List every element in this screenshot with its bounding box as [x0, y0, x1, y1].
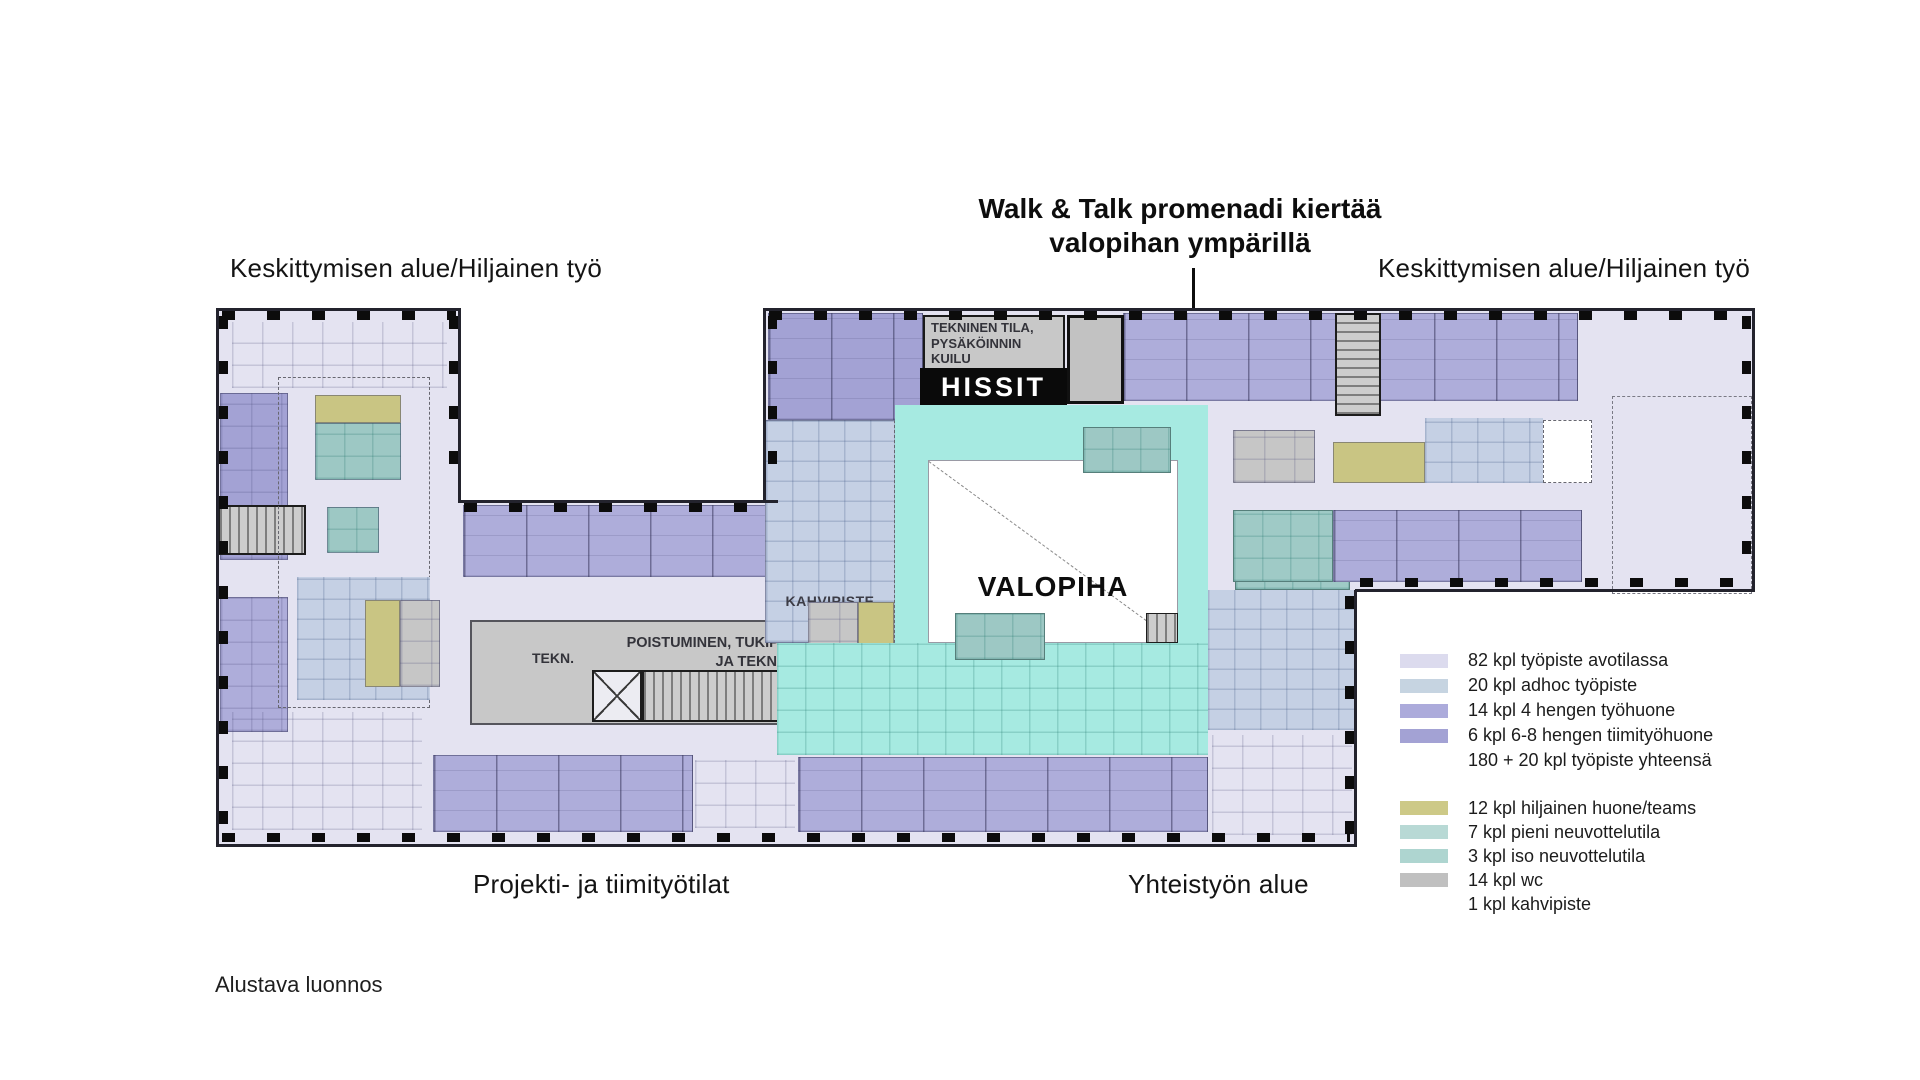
wall-right	[1752, 308, 1755, 592]
elevator-shaft-middle	[592, 670, 642, 722]
poistuminen-line1: POISTUMINEN, TUKIP.	[627, 634, 781, 653]
walk-talk-annotation: Walk & Talk promenadi kiertää valopihan …	[940, 192, 1420, 260]
legend-swatch-open-office	[1400, 654, 1448, 668]
tekninen-line1: TEKNINEN TILA,	[931, 320, 1057, 336]
open-desks-bottom-left	[232, 712, 422, 830]
ticks-notch-top	[464, 503, 770, 512]
area-label-top-left: Keskittymisen alue/Hiljainen työ	[230, 253, 602, 284]
office-room-strip-right-bottom	[1333, 510, 1582, 582]
area-label-top-right: Keskittymisen alue/Hiljainen työ	[1378, 253, 1750, 284]
hissit-elevator-lobby: HISSIT	[920, 368, 1067, 406]
office-room-strip-middle	[463, 505, 775, 577]
promenade-right	[1178, 460, 1208, 643]
wall-notch-right	[763, 308, 766, 503]
wc-block-left	[400, 600, 440, 687]
legend-row: 20 kpl adhoc työpiste	[1400, 673, 1713, 698]
courtyard-stairs	[1146, 613, 1178, 643]
legend-label: 82 kpl työpiste avotilassa	[1468, 650, 1668, 671]
quiet-rooms-right	[1333, 442, 1425, 483]
legend-row: 6 kpl 6-8 hengen tiimityöhuone	[1400, 723, 1713, 748]
legend-room-group: 12 kpl hiljainen huone/teams 7 kpl pieni…	[1400, 796, 1696, 916]
legend-swatch-spacer	[1400, 754, 1448, 768]
legend-label: 6 kpl 6-8 hengen tiimityöhuone	[1468, 725, 1713, 746]
legend-row: 3 kpl iso neuvottelutila	[1400, 844, 1696, 868]
area-label-bottom-left: Projekti- ja tiimityötilat	[473, 869, 730, 900]
legend-row: 7 kpl pieni neuvottelutila	[1400, 820, 1696, 844]
legend-swatch-small-meeting	[1400, 825, 1448, 839]
ticks-bottom-main	[222, 833, 1350, 842]
legend-row: 1 kpl kahvipiste	[1400, 892, 1696, 916]
stairwell-right-wing	[1335, 313, 1381, 416]
legend-label: 7 kpl pieni neuvottelutila	[1468, 822, 1660, 843]
collaboration-lounge	[1208, 590, 1355, 730]
wall-bottom-main	[216, 844, 1357, 847]
tekninen-line2: PYSÄKÖINNIN	[931, 336, 1057, 352]
adhoc-area-right	[1425, 418, 1543, 483]
valopiha-label: VALOPIHA	[929, 571, 1177, 603]
ticks-right-center-lower	[1345, 596, 1354, 841]
ticks-top-left	[222, 311, 456, 320]
legend-label: 14 kpl 4 hengen työhuone	[1468, 700, 1675, 721]
ticks-notch-left	[449, 316, 458, 496]
team-room-strip-center-top-left	[768, 313, 923, 420]
legend-row: 82 kpl työpiste avotilassa	[1400, 648, 1713, 673]
legend-row: 180 + 20 kpl työpiste yhteensä	[1400, 748, 1713, 773]
legend-row: 14 kpl wc	[1400, 868, 1696, 892]
hissit-label: HISSIT	[941, 372, 1046, 403]
legend-swatch-room4	[1400, 704, 1448, 718]
quiet-room-left-2	[365, 600, 400, 687]
legend-swatch-large-meeting	[1400, 849, 1448, 863]
legend-label: 14 kpl wc	[1468, 870, 1543, 891]
floor-plan-page: Keskittymisen alue/Hiljainen työ Keskitt…	[0, 0, 1920, 1080]
area-label-bottom-right: Yhteistyön alue	[1128, 869, 1309, 900]
walk-talk-line2: valopihan ympärillä	[940, 226, 1420, 260]
tekn-label: TEKN.	[532, 650, 574, 666]
large-meeting-room-right	[1233, 510, 1333, 582]
tekninen-line3: KUILU	[931, 351, 1057, 367]
wc-block-right	[1233, 430, 1315, 483]
wall-notch-left	[458, 308, 461, 503]
ticks-top-center-right	[769, 311, 1749, 320]
small-meeting-ring-top	[1083, 427, 1171, 473]
legend-row: 14 kpl 4 hengen työhuone	[1400, 698, 1713, 723]
desk-room-strip-bottom-center	[798, 757, 1208, 832]
legend-label: 1 kpl kahvipiste	[1468, 894, 1591, 915]
ticks-bottom-right-wing	[1360, 578, 1750, 587]
open-desks-bottom-right	[1212, 735, 1352, 835]
poistuminen-label: POISTUMINEN, TUKIP. JA TEKN.	[627, 634, 781, 672]
walk-talk-line1: Walk & Talk promenadi kiertää	[940, 192, 1420, 226]
open-desk-area-right-edge	[1612, 396, 1752, 594]
team-room-strip-bottom-left	[433, 755, 693, 832]
small-meeting-ring-bottom	[955, 613, 1045, 660]
legend-swatch-wc	[1400, 873, 1448, 887]
dashed-room-right	[1543, 420, 1592, 483]
open-desks-bottom-gap	[695, 760, 795, 828]
promenade-left	[895, 460, 928, 643]
ticks-notch-right	[768, 316, 777, 496]
draft-note: Alustava luonnos	[215, 972, 383, 998]
wall-bottom-right-wing	[1355, 589, 1755, 592]
legend-swatch-spacer	[1400, 897, 1448, 911]
legend-swatch-team-room	[1400, 729, 1448, 743]
legend-workspace-group: 82 kpl työpiste avotilassa 20 kpl adhoc …	[1400, 648, 1713, 773]
legend-swatch-adhoc	[1400, 679, 1448, 693]
legend-label: 12 kpl hiljainen huone/teams	[1468, 798, 1696, 819]
ticks-left-wall	[219, 316, 228, 840]
wall-right-center-lower	[1354, 590, 1357, 847]
legend-swatch-quiet	[1400, 801, 1448, 815]
legend-row: 12 kpl hiljainen huone/teams	[1400, 796, 1696, 820]
elevator-shaft-core	[1067, 315, 1124, 404]
tekninen-tila-box: TEKNINEN TILA, PYSÄKÖINNIN KUILU	[923, 315, 1065, 368]
ticks-right-wall	[1742, 316, 1751, 586]
legend-label: 20 kpl adhoc työpiste	[1468, 675, 1637, 696]
legend-label: 3 kpl iso neuvottelutila	[1468, 846, 1645, 867]
stairwell-middle	[642, 670, 790, 722]
legend-label: 180 + 20 kpl työpiste yhteensä	[1468, 750, 1712, 771]
